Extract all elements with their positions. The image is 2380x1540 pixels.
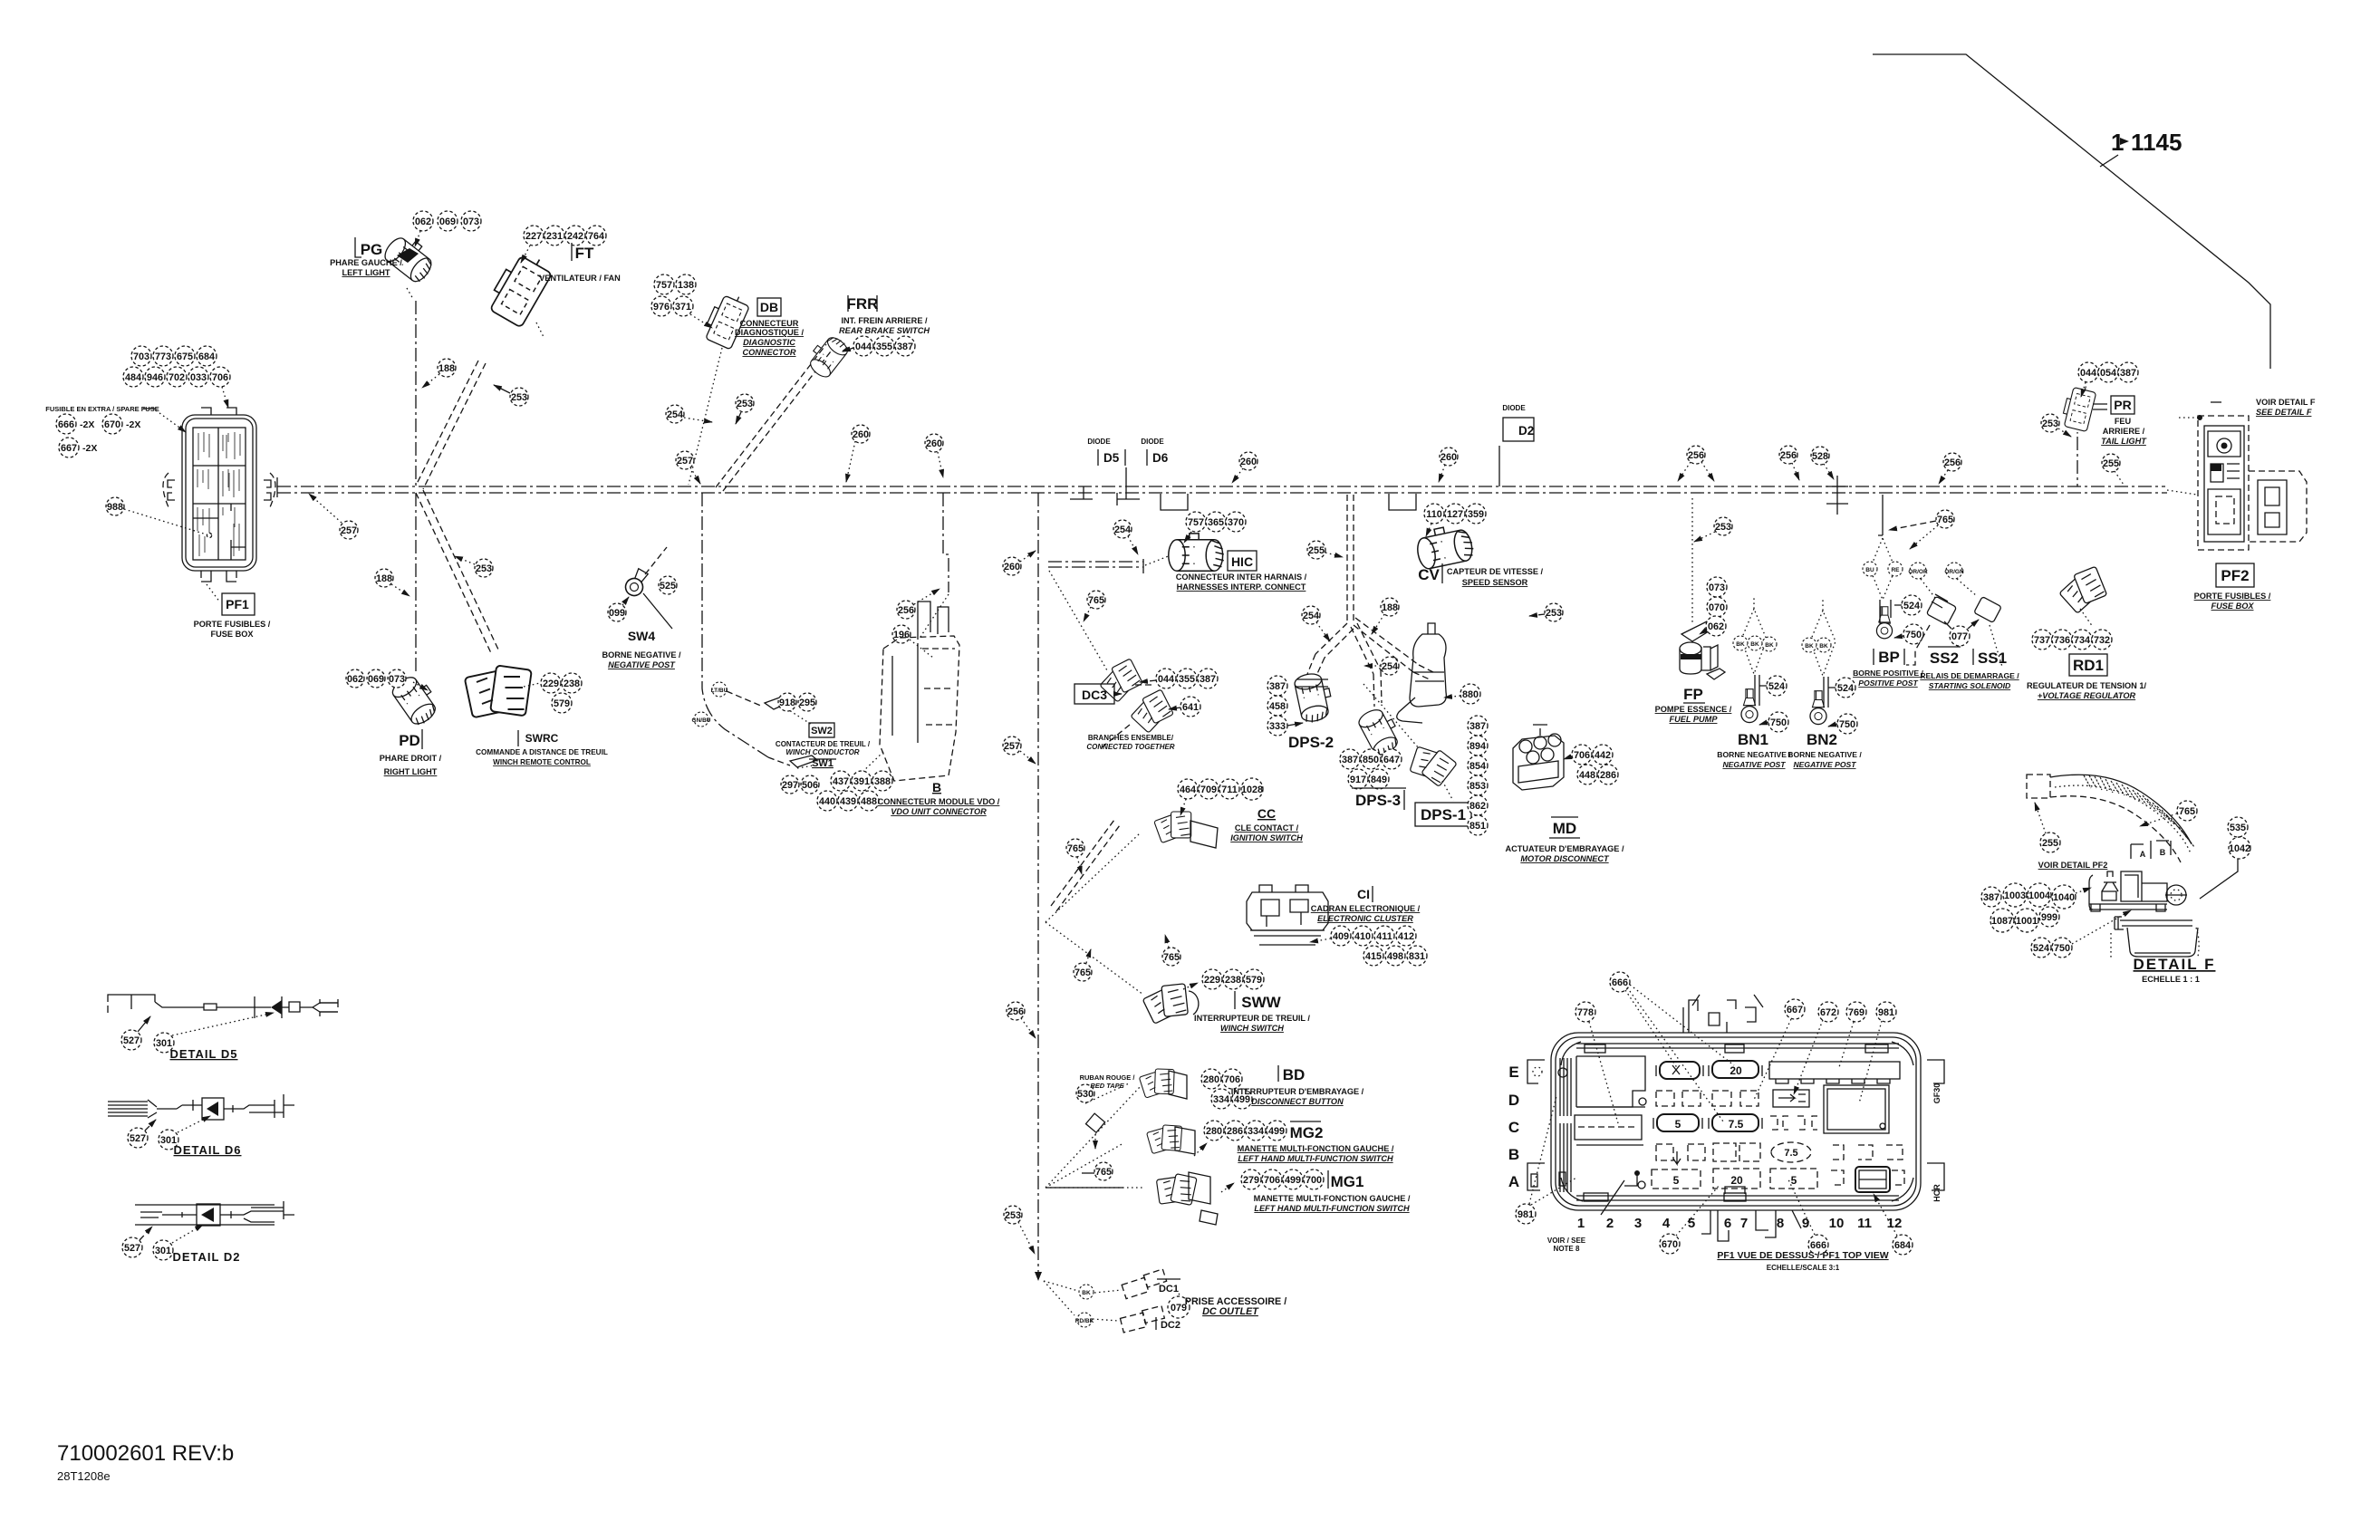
svg-text:530: 530	[1077, 1089, 1094, 1100]
svg-text:044: 044	[2080, 368, 2096, 379]
svg-text:GF30: GF30	[1932, 1083, 1942, 1104]
svg-text:703: 703	[133, 351, 149, 362]
svg-text:286: 286	[1600, 770, 1616, 781]
svg-text:355: 355	[876, 342, 892, 352]
svg-text:DIODE: DIODE	[1502, 404, 1526, 412]
svg-text:764: 764	[588, 231, 604, 242]
svg-text:524: 524	[1768, 681, 1785, 692]
svg-text:CC: CC	[1257, 806, 1276, 821]
svg-text:765: 765	[1095, 1167, 1112, 1178]
svg-text:VENTILATEUR / FAN: VENTILATEUR / FAN	[539, 274, 621, 283]
svg-text:SPEED SENSOR: SPEED SENSOR	[1462, 578, 1528, 587]
svg-text:831: 831	[1409, 951, 1425, 962]
svg-text:849: 849	[1371, 775, 1387, 785]
svg-text:BK: BK	[1736, 641, 1745, 648]
svg-text:301: 301	[155, 1246, 171, 1256]
svg-text:387: 387	[1200, 674, 1216, 685]
svg-text:253: 253	[1715, 522, 1731, 533]
svg-text:387: 387	[1983, 892, 1999, 903]
svg-text:HARNESSES INTERP. CONNECT: HARNESSES INTERP. CONNECT	[1177, 582, 1306, 592]
svg-text:765: 765	[1163, 952, 1180, 963]
svg-text:077: 077	[1951, 631, 1968, 642]
svg-text:498: 498	[1387, 951, 1403, 962]
svg-text:387: 387	[1269, 681, 1286, 692]
svg-text:LEFT LIGHT: LEFT LIGHT	[342, 268, 390, 277]
svg-text:RD1: RD1	[2073, 657, 2104, 674]
svg-text:127: 127	[1447, 509, 1463, 520]
svg-text:069: 069	[439, 217, 456, 227]
svg-text:257: 257	[1004, 741, 1020, 752]
svg-text:750: 750	[1770, 717, 1787, 728]
svg-text:BN2: BN2	[1807, 731, 1837, 748]
svg-text:PG: PG	[361, 241, 383, 258]
svg-text:524: 524	[2033, 943, 2049, 954]
svg-text:110: 110	[1426, 509, 1441, 520]
svg-text:FRR: FRR	[847, 295, 879, 313]
svg-text:5: 5	[1791, 1174, 1797, 1187]
svg-text:1004: 1004	[2028, 890, 2050, 901]
svg-text:BK: BK	[1819, 643, 1828, 650]
svg-text:IGNITION SWITCH: IGNITION SWITCH	[1230, 833, 1303, 842]
svg-text:257: 257	[341, 525, 357, 536]
svg-text:FUEL PUMP: FUEL PUMP	[1670, 715, 1719, 724]
svg-text:WINCH CONDUCTOR: WINCH CONDUCTOR	[785, 748, 859, 756]
svg-text:B: B	[932, 780, 941, 794]
svg-text:BORNE POSITIVE /: BORNE POSITIVE /	[1853, 669, 1923, 678]
svg-text:WINCH REMOTE CONTROL: WINCH REMOTE CONTROL	[493, 758, 591, 766]
svg-text:5: 5	[1673, 1174, 1680, 1187]
svg-text:579: 579	[554, 698, 570, 709]
svg-text:BD: BD	[1283, 1066, 1306, 1083]
svg-text:PF1 VUE DE DESSUS / PF1 TOP VI: PF1 VUE DE DESSUS / PF1 TOP VIEW	[1717, 1250, 1888, 1261]
svg-text:FUSIBLE EN EXTRA / SPARE FUSE: FUSIBLE EN EXTRA / SPARE FUSE	[45, 405, 159, 413]
svg-text:976: 976	[653, 302, 670, 313]
svg-text:757: 757	[656, 280, 672, 291]
svg-text:FUSE BOX: FUSE BOX	[211, 630, 255, 639]
svg-text:5: 5	[1688, 1216, 1695, 1231]
svg-text:073: 073	[463, 217, 479, 227]
svg-text:RED TAPE: RED TAPE	[1090, 1082, 1124, 1090]
svg-text:666: 666	[58, 419, 74, 430]
svg-text:670: 670	[1662, 1239, 1678, 1250]
svg-text:5: 5	[1675, 1118, 1681, 1131]
svg-text:ECHELLE/SCALE 3:1: ECHELLE/SCALE 3:1	[1767, 1264, 1840, 1272]
svg-text:260: 260	[853, 429, 869, 440]
svg-text:CV: CV	[1418, 566, 1440, 583]
svg-text:PHARE GAUCHE /: PHARE GAUCHE /	[330, 258, 402, 267]
svg-text:FEU: FEU	[2115, 417, 2132, 426]
svg-text:257: 257	[677, 456, 693, 467]
svg-text:917: 917	[1350, 775, 1366, 785]
svg-text:280: 280	[1206, 1126, 1222, 1137]
svg-text:9: 9	[1802, 1216, 1809, 1231]
svg-text:RELAIS DE DEMARRAGE /: RELAIS DE DEMARRAGE /	[1920, 671, 2019, 680]
svg-text:1087: 1087	[1991, 916, 2013, 927]
svg-text:415: 415	[1365, 951, 1382, 962]
svg-text:SEE DETAIL F: SEE DETAIL F	[2256, 408, 2312, 417]
svg-text:RD/BK: RD/BK	[1075, 1318, 1094, 1324]
svg-text:702: 702	[169, 372, 185, 383]
svg-text:CONNECTED TOGETHER: CONNECTED TOGETHER	[1086, 743, 1174, 751]
svg-text:062: 062	[1708, 621, 1724, 632]
svg-text:DETAIL D5: DETAIL D5	[170, 1047, 238, 1061]
svg-text:A: A	[1508, 1173, 1519, 1190]
svg-text:710002601 REV:b: 710002601 REV:b	[57, 1441, 234, 1466]
svg-text:STARTING SOLENOID: STARTING SOLENOID	[1929, 681, 2010, 690]
svg-text:448: 448	[1579, 770, 1595, 781]
svg-text:BK: BK	[1765, 642, 1774, 649]
svg-text:412: 412	[1398, 931, 1414, 942]
svg-text:POSITIVE POST: POSITIVE POST	[1858, 679, 1918, 688]
svg-text:260: 260	[1441, 452, 1457, 463]
svg-text:765: 765	[2179, 806, 2195, 817]
svg-text:WINCH SWITCH: WINCH SWITCH	[1220, 1024, 1284, 1033]
svg-text:044: 044	[855, 342, 872, 352]
svg-text:333: 333	[1269, 721, 1286, 732]
svg-text:ECHELLE 1 : 1: ECHELLE 1 : 1	[2142, 975, 2200, 984]
svg-text:488: 488	[861, 796, 877, 807]
svg-text:667: 667	[1787, 1005, 1803, 1015]
svg-text:371: 371	[675, 302, 691, 313]
svg-text:387: 387	[2120, 368, 2136, 379]
svg-text:255: 255	[2042, 838, 2058, 849]
svg-text:280: 280	[1203, 1074, 1219, 1085]
svg-text:253: 253	[737, 399, 753, 409]
svg-text:255: 255	[2103, 458, 2119, 469]
svg-text:1028: 1028	[1241, 784, 1263, 795]
svg-text:NEGATIVE POST: NEGATIVE POST	[608, 660, 676, 669]
svg-text:734: 734	[2074, 635, 2090, 646]
svg-text:BORNE NEGATIVE /: BORNE NEGATIVE /	[602, 650, 681, 659]
svg-text:524: 524	[1903, 601, 1920, 611]
svg-text:750: 750	[1839, 719, 1855, 730]
svg-text:535: 535	[2230, 823, 2246, 833]
svg-text:736: 736	[2054, 635, 2070, 646]
svg-text:-2X: -2X	[126, 419, 140, 430]
svg-text:B: B	[2160, 848, 2166, 857]
svg-text:SW4: SW4	[628, 629, 656, 643]
svg-text:MOTOR DISCONNECT: MOTOR DISCONNECT	[1520, 854, 1610, 863]
svg-text:LEFT HAND MULTI-FUNCTION SWITC: LEFT HAND MULTI-FUNCTION SWITCH	[1254, 1204, 1410, 1213]
svg-text:ELECTRONIC CLUSTER: ELECTRONIC CLUSTER	[1317, 914, 1413, 923]
svg-text:499: 499	[1268, 1126, 1285, 1137]
svg-text:2: 2	[1606, 1216, 1614, 1231]
svg-text:409: 409	[1333, 931, 1349, 942]
svg-text:DPS-2: DPS-2	[1288, 734, 1334, 751]
svg-text:FUSE BOX: FUSE BOX	[2211, 602, 2255, 611]
svg-text:LT/BU: LT/BU	[711, 688, 728, 694]
svg-text:069: 069	[368, 674, 384, 685]
svg-text:464: 464	[1180, 784, 1196, 795]
svg-text:D5: D5	[1103, 451, 1120, 465]
svg-text:D6: D6	[1152, 451, 1169, 465]
svg-text:370: 370	[1228, 517, 1244, 528]
svg-text:VDO UNIT CONNECTOR: VDO UNIT CONNECTOR	[891, 807, 987, 816]
svg-text:188: 188	[438, 363, 455, 374]
svg-text:440: 440	[819, 796, 835, 807]
svg-text:CONNECTEUR MODULE VDO /: CONNECTEUR MODULE VDO /	[878, 797, 1000, 806]
svg-text:BK: BK	[1082, 1290, 1091, 1296]
svg-text:D: D	[1508, 1092, 1519, 1109]
svg-text:253: 253	[1005, 1210, 1021, 1221]
svg-text:DETAIL F: DETAIL F	[2134, 956, 2216, 973]
svg-text:BORNE NEGATIVE /: BORNE NEGATIVE /	[1787, 750, 1862, 759]
svg-text:062: 062	[415, 217, 431, 227]
svg-text:+VOLTAGE REGULATOR: +VOLTAGE REGULATOR	[2038, 691, 2136, 700]
svg-text:334: 334	[1213, 1094, 1229, 1105]
svg-text:711: 711	[1221, 784, 1237, 795]
svg-text:COMMANDE A DISTANCE DE TREUIL: COMMANDE A DISTANCE DE TREUIL	[476, 748, 608, 756]
svg-text:MG2: MG2	[1290, 1124, 1324, 1141]
svg-text:054: 054	[2100, 368, 2116, 379]
svg-text:PHARE DROIT /: PHARE DROIT /	[380, 754, 442, 763]
svg-text:684: 684	[198, 351, 215, 362]
svg-text:FP: FP	[1683, 686, 1703, 703]
svg-text:254: 254	[667, 409, 683, 420]
svg-text:229: 229	[1204, 975, 1220, 986]
svg-text:DB: DB	[760, 300, 778, 314]
svg-text:525: 525	[660, 581, 676, 592]
svg-text:PF1: PF1	[226, 597, 249, 611]
svg-text:188: 188	[1382, 602, 1398, 613]
svg-text:1040: 1040	[2053, 892, 2075, 903]
svg-text:-2X: -2X	[82, 443, 97, 454]
svg-text:POMPE ESSENCE /: POMPE ESSENCE /	[1655, 705, 1732, 714]
svg-text:DIAGNOSTIQUE /: DIAGNOSTIQUE /	[735, 328, 805, 337]
svg-text:254: 254	[1114, 525, 1131, 535]
svg-text:A: A	[2140, 850, 2146, 859]
svg-text:253: 253	[511, 392, 527, 403]
svg-text:1001: 1001	[2016, 916, 2038, 927]
svg-text:387: 387	[1469, 721, 1486, 732]
svg-text:981: 981	[1518, 1209, 1534, 1220]
svg-text:918: 918	[779, 698, 795, 708]
svg-text:099: 099	[609, 608, 625, 619]
svg-text:295: 295	[799, 698, 815, 708]
svg-text:359: 359	[1468, 509, 1484, 520]
svg-text:VOIR DETAIL F: VOIR DETAIL F	[2256, 398, 2316, 407]
svg-text:HIC: HIC	[1231, 554, 1253, 569]
svg-text:INTERRUPTEUR D'EMBRAYAGE /: INTERRUPTEUR D'EMBRAYAGE /	[1231, 1087, 1364, 1096]
svg-text:GN/BU: GN/BU	[692, 717, 711, 724]
svg-text:CONNECTOR: CONNECTOR	[742, 348, 795, 357]
svg-text:FT: FT	[575, 245, 594, 262]
svg-text:DPS-3: DPS-3	[1355, 792, 1401, 809]
svg-text:238: 238	[1225, 975, 1241, 986]
svg-text:706: 706	[1264, 1175, 1280, 1186]
svg-text:SS1: SS1	[1978, 650, 2007, 667]
svg-text:524: 524	[1837, 683, 1854, 694]
svg-text:391: 391	[853, 776, 870, 787]
svg-text:527: 527	[124, 1243, 140, 1254]
svg-text:OR/OR: OR/OR	[1908, 569, 1928, 575]
svg-text:700: 700	[1306, 1175, 1322, 1186]
svg-text:28T1208e: 28T1208e	[57, 1469, 111, 1483]
svg-text:044: 044	[1158, 674, 1174, 685]
svg-text:253: 253	[1546, 608, 1562, 619]
svg-text:1003: 1003	[2004, 890, 2026, 901]
svg-text:20: 20	[1730, 1064, 1742, 1077]
svg-text:CLE CONTACT /: CLE CONTACT /	[1235, 823, 1299, 833]
svg-text:286: 286	[1227, 1126, 1243, 1137]
svg-text:256: 256	[1944, 457, 1961, 468]
svg-text:750: 750	[1905, 630, 1922, 640]
svg-text:411: 411	[1376, 931, 1392, 942]
svg-text:256: 256	[898, 605, 914, 616]
svg-text:765: 765	[1067, 843, 1084, 854]
svg-text:334: 334	[1248, 1126, 1264, 1137]
svg-text:BU: BU	[1865, 567, 1874, 573]
svg-text:528: 528	[1812, 451, 1828, 462]
svg-text:255: 255	[1308, 545, 1325, 556]
svg-text:INT. FREIN ARRIERE /: INT. FREIN ARRIERE /	[841, 316, 928, 325]
svg-text:SWW: SWW	[1241, 994, 1281, 1011]
svg-text:231: 231	[546, 231, 563, 242]
svg-text:12: 12	[1887, 1216, 1903, 1231]
svg-text:BK: BK	[1805, 643, 1814, 650]
svg-text:PR: PR	[2114, 398, 2131, 412]
svg-text:388: 388	[874, 776, 891, 787]
svg-text:437: 437	[833, 776, 849, 787]
svg-text:260: 260	[926, 438, 942, 449]
svg-text:256: 256	[1688, 450, 1704, 461]
svg-text:VOIR DETAIL PF2: VOIR DETAIL PF2	[2038, 861, 2108, 870]
svg-text:499: 499	[1285, 1175, 1301, 1186]
svg-text:279: 279	[1243, 1175, 1259, 1186]
svg-text:254: 254	[1303, 611, 1319, 621]
svg-text:ACTUATEUR D'EMBRAYAGE /: ACTUATEUR D'EMBRAYAGE /	[1506, 844, 1624, 853]
svg-text:REAR BRAKE SWITCH: REAR BRAKE SWITCH	[839, 326, 930, 335]
svg-text:757: 757	[1188, 517, 1204, 528]
svg-text:750: 750	[2054, 943, 2070, 954]
svg-text:260: 260	[1240, 457, 1257, 467]
svg-text:7.5: 7.5	[1784, 1148, 1797, 1159]
svg-text:253: 253	[2042, 419, 2058, 429]
svg-text:894: 894	[1469, 741, 1486, 752]
svg-text:DISCONNECT BUTTON: DISCONNECT BUTTON	[1251, 1097, 1344, 1106]
svg-text:365: 365	[1208, 517, 1224, 528]
svg-text:D2: D2	[1518, 424, 1534, 438]
svg-text:672: 672	[1820, 1007, 1836, 1018]
svg-text:675: 675	[177, 351, 193, 362]
svg-text:946: 946	[147, 372, 163, 383]
svg-text:073: 073	[389, 674, 405, 685]
svg-text:765: 765	[1088, 595, 1104, 606]
svg-text:ARRIERE /: ARRIERE /	[2103, 427, 2145, 436]
svg-text:-2X: -2X	[80, 419, 94, 430]
svg-text:227: 227	[525, 231, 542, 242]
svg-text:RIGHT LIGHT: RIGHT LIGHT	[384, 767, 438, 776]
svg-text:RUBAN ROUGE /: RUBAN ROUGE /	[1080, 1073, 1136, 1082]
svg-text:SS2: SS2	[1930, 650, 1959, 667]
svg-text:769: 769	[1848, 1007, 1864, 1018]
svg-text:778: 778	[1577, 1007, 1594, 1018]
svg-text:NEGATIVE POST: NEGATIVE POST	[1793, 760, 1856, 769]
svg-text:670: 670	[104, 419, 120, 430]
svg-text:773: 773	[155, 351, 171, 362]
svg-text:CI: CI	[1357, 887, 1370, 901]
svg-text:579: 579	[1246, 975, 1262, 986]
svg-text:737: 737	[2034, 635, 2050, 646]
svg-text:BN1: BN1	[1738, 731, 1768, 748]
svg-text:765: 765	[1074, 967, 1091, 978]
svg-text:DPS-1: DPS-1	[1421, 806, 1466, 823]
svg-text:SWRC: SWRC	[525, 732, 559, 745]
svg-text:256: 256	[1780, 450, 1797, 461]
svg-text:PORTE FUSIBLES /: PORTE FUSIBLES /	[194, 620, 271, 629]
svg-text:647: 647	[1383, 755, 1400, 765]
svg-text:DC1: DC1	[1159, 1284, 1179, 1295]
svg-text:VOIR / SEE: VOIR / SEE	[1547, 1237, 1586, 1245]
svg-text:20: 20	[1730, 1174, 1743, 1187]
svg-text:387: 387	[1342, 755, 1358, 765]
svg-text:BRANCHES ENSEMBLE/: BRANCHES ENSEMBLE/	[1088, 734, 1174, 742]
svg-text:527: 527	[130, 1133, 146, 1144]
svg-text:062: 062	[347, 674, 363, 685]
svg-text:LEFT HAND MULTI-FUNCTION SWITC: LEFT HAND MULTI-FUNCTION SWITCH	[1238, 1154, 1393, 1163]
svg-text:8: 8	[1777, 1216, 1784, 1231]
svg-text:E: E	[1508, 1064, 1518, 1081]
svg-text:DETAIL D2: DETAIL D2	[173, 1250, 241, 1264]
svg-text:254: 254	[1382, 661, 1398, 672]
svg-text:CONNECTEUR: CONNECTEUR	[740, 319, 799, 328]
svg-text:484: 484	[125, 372, 141, 383]
svg-text:706: 706	[1224, 1074, 1240, 1085]
svg-text:7: 7	[1740, 1216, 1748, 1231]
svg-text:DC OUTLET: DC OUTLET	[1202, 1306, 1259, 1317]
svg-text:260: 260	[1004, 562, 1020, 573]
svg-text:188: 188	[376, 573, 392, 584]
svg-text:6: 6	[1724, 1216, 1731, 1231]
svg-text:297: 297	[782, 780, 798, 791]
svg-text:OR/GN: OR/GN	[1944, 569, 1964, 575]
svg-text:439: 439	[840, 796, 856, 807]
svg-text:DC3: DC3	[1082, 688, 1107, 702]
svg-text:070: 070	[1709, 602, 1725, 613]
svg-text:862: 862	[1469, 801, 1486, 812]
svg-text:981: 981	[1878, 1007, 1894, 1018]
svg-text:DC2: DC2	[1161, 1320, 1180, 1331]
svg-text:242: 242	[567, 231, 583, 242]
svg-text:196: 196	[893, 630, 910, 640]
svg-text:527: 527	[123, 1035, 140, 1046]
svg-text:MD: MD	[1553, 820, 1576, 837]
svg-text:256: 256	[1007, 1006, 1024, 1017]
svg-text:C: C	[1508, 1119, 1519, 1136]
svg-text:CAPTEUR DE VITESSE /: CAPTEUR DE VITESSE /	[1447, 567, 1544, 576]
svg-text:BK: BK	[1750, 641, 1759, 648]
svg-text:853: 853	[1469, 781, 1486, 792]
svg-text:506: 506	[802, 780, 818, 791]
svg-text:1: 1	[1577, 1216, 1585, 1231]
svg-text:387: 387	[897, 342, 913, 352]
svg-text:DETAIL D6: DETAIL D6	[174, 1143, 242, 1157]
svg-text:1042: 1042	[2229, 843, 2250, 854]
svg-text:DIODE: DIODE	[1141, 438, 1164, 446]
svg-text:732: 732	[2094, 635, 2110, 646]
svg-text:10: 10	[1829, 1216, 1845, 1231]
svg-text:BORNE NEGATIVE /: BORNE NEGATIVE /	[1717, 750, 1791, 759]
svg-text:073: 073	[1709, 582, 1725, 593]
svg-text:138: 138	[678, 280, 694, 291]
svg-text:NOTE 8: NOTE 8	[1554, 1245, 1580, 1253]
svg-text:CONNECTEUR INTER HARNAIS /: CONNECTEUR INTER HARNAIS /	[1176, 573, 1307, 582]
svg-text:851: 851	[1469, 821, 1486, 832]
svg-text:HCR: HCR	[1932, 1184, 1942, 1202]
svg-text:1145: 1145	[2131, 129, 2182, 156]
svg-text:PF2: PF2	[2221, 567, 2249, 584]
svg-text:MG1: MG1	[1331, 1173, 1364, 1190]
